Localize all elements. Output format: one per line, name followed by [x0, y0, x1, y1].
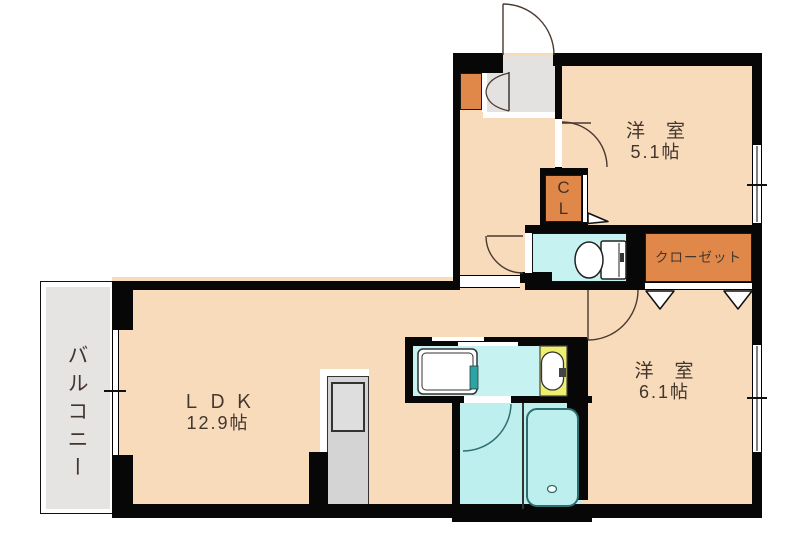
wall	[752, 223, 762, 290]
window-balcony	[112, 330, 119, 455]
ldk-size: 12.9帖	[128, 413, 308, 434]
wall	[752, 282, 762, 345]
wall	[452, 508, 592, 522]
label-balcony: バルコニー	[61, 316, 91, 511]
wall	[309, 452, 328, 518]
label-ldk: Ｌ Ｄ Ｋ 12.9帖	[128, 392, 308, 434]
sliding-door-panel-b	[458, 342, 518, 346]
entrance-door-icon	[503, 4, 554, 55]
label-western2: 洋 室 6.1帖	[572, 361, 757, 403]
sliding-door-panel-a	[432, 337, 484, 341]
wall	[452, 396, 460, 512]
wall	[453, 66, 460, 283]
wall	[567, 282, 645, 290]
doorway-hall-ldk	[460, 275, 520, 288]
entry-step	[483, 112, 555, 118]
wall	[525, 225, 762, 233]
bathroom	[460, 403, 582, 510]
western2-name: 洋 室	[572, 361, 757, 382]
closet-track	[645, 282, 752, 290]
western1-size: 5.1帖	[557, 142, 755, 163]
doorway-bathroom	[464, 396, 511, 403]
wall	[453, 53, 503, 73]
western1-name: 洋 室	[557, 121, 755, 142]
cl-track	[582, 175, 588, 222]
wall	[112, 281, 460, 290]
shoe-cabinet	[460, 73, 482, 110]
label-western1: 洋 室 5.1帖	[557, 121, 755, 163]
wall	[540, 168, 588, 175]
doorway-toilet	[525, 233, 532, 273]
kitchen-sink	[331, 382, 365, 432]
shoe-cabinet-track	[482, 72, 487, 112]
western2-size: 6.1帖	[572, 382, 757, 403]
wall	[752, 452, 762, 504]
wall	[555, 58, 562, 118]
wall	[540, 175, 545, 225]
label-cl: C L	[546, 177, 581, 219]
washroom	[413, 346, 567, 396]
wall	[553, 53, 762, 66]
ldk-name: Ｌ Ｄ Ｋ	[128, 392, 308, 413]
entry-door-gap	[503, 56, 553, 68]
wall	[520, 272, 552, 283]
wall	[405, 337, 413, 403]
label-closet: クローゼット	[646, 250, 751, 265]
floor-plan: 洋 室 5.1帖 洋 室 6.1帖 Ｌ Ｄ Ｋ 12.9帖 クローゼット C L…	[0, 0, 800, 542]
wall	[112, 283, 133, 330]
cl-line1: C	[546, 177, 581, 198]
cl-line2: L	[546, 198, 581, 219]
wall	[112, 504, 762, 518]
